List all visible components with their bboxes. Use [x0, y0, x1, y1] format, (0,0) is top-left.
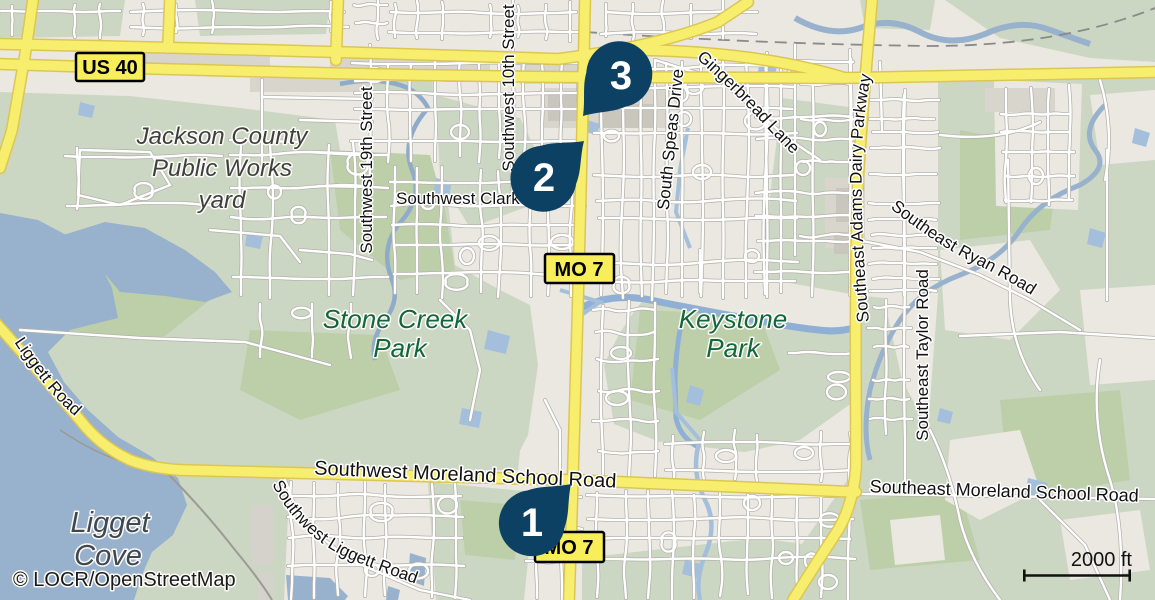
svg-text:Southwest Clark: Southwest Clark — [396, 189, 520, 208]
svg-text:Southwest 10th Street: Southwest 10th Street — [499, 4, 518, 172]
svg-text:Southeast Taylor Road: Southeast Taylor Road — [913, 269, 932, 441]
svg-text:US 40: US 40 — [82, 57, 138, 79]
svg-text:MO 7: MO 7 — [555, 259, 604, 281]
svg-text:1: 1 — [521, 501, 543, 545]
svg-text:3: 3 — [610, 54, 632, 98]
svg-text:LiggetCove: LiggetCove — [70, 507, 151, 572]
svg-text:2000 ft: 2000 ft — [1071, 549, 1133, 571]
svg-text:2: 2 — [533, 156, 555, 200]
svg-text:© LOCR/OpenStreetMap: © LOCR/OpenStreetMap — [13, 569, 236, 591]
svg-text:Southwest 19th Street: Southwest 19th Street — [357, 86, 376, 254]
